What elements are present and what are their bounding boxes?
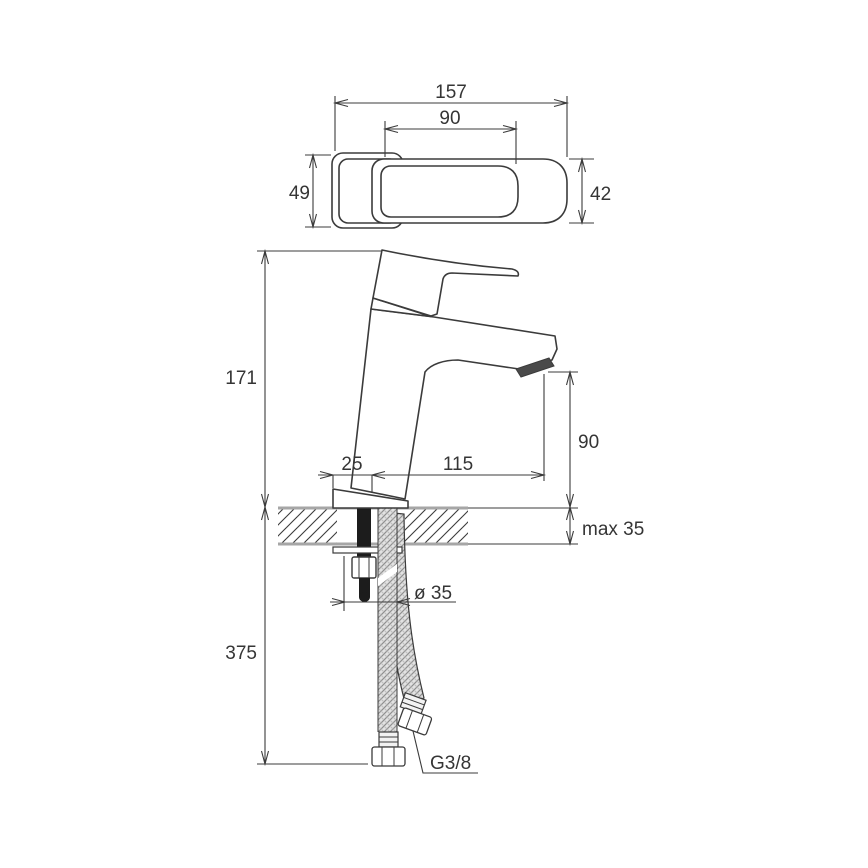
hose-straight-braid: [378, 508, 397, 732]
dim-label-base-front-offset: 25: [341, 454, 362, 475]
faucet-top-view: [332, 153, 567, 228]
dim-label-lever-width: 42: [590, 184, 611, 205]
hose-straight-nut: [372, 747, 405, 766]
dim-label-spout-outlet-height: 90: [578, 432, 599, 453]
deck-hatch-left: [278, 510, 337, 543]
dim-label-connection-thread: G3/8: [430, 753, 471, 774]
hose-straight-connector: [379, 732, 398, 747]
dim-label-mounting-hole-diameter: ø 35: [414, 583, 452, 604]
deck-hatch-right: [405, 510, 468, 543]
dim-label-max-deck-thickness: max 35: [582, 519, 644, 540]
mounting-nut: [352, 557, 376, 578]
top-view-lever-outer: [372, 159, 567, 223]
faucet-dimension-drawing: 157 90 49 42 171 375 25 115 90 max 35 ø …: [0, 0, 868, 868]
hose-curved-nut: [397, 707, 432, 735]
stud-tip: [359, 592, 370, 602]
counter-deck: [278, 508, 468, 544]
dim-label-overall-length: 157: [435, 82, 467, 103]
technical-drawing-canvas: 157 90 49 42 171 375 25 115 90 max 35 ø …: [0, 0, 868, 868]
dim-label-hose-drop-length: 375: [225, 643, 257, 664]
dim-label-total-height: 171: [225, 368, 257, 389]
dim-label-spout-reach: 115: [443, 454, 473, 475]
dim-label-lever-length: 90: [439, 108, 460, 129]
dim-label-base-width: 49: [289, 183, 310, 204]
